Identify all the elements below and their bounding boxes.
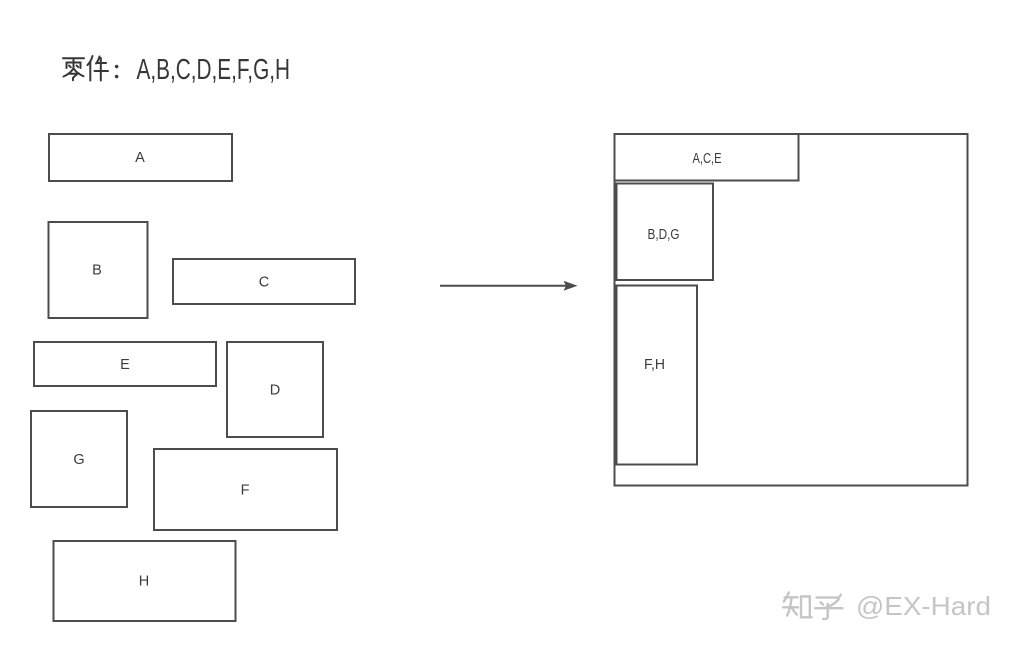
svg-text:A,C,E: A,C,E	[693, 151, 722, 167]
svg-text:F,H: F,H	[644, 357, 665, 373]
svg-text:H: H	[139, 574, 149, 590]
svg-text:B: B	[92, 263, 102, 279]
svg-text:D: D	[270, 383, 280, 399]
svg-text:@EX-Hard: @EX-Hard	[856, 591, 991, 621]
svg-text:E: E	[120, 357, 130, 373]
svg-text:F: F	[241, 483, 250, 499]
svg-text:G: G	[73, 452, 84, 468]
svg-text:C: C	[259, 275, 269, 291]
svg-text:A,B,C,D,E,F,G,H: A,B,C,D,E,F,G,H	[137, 54, 291, 86]
svg-text:B,D,G: B,D,G	[648, 227, 680, 243]
svg-text:A: A	[135, 150, 145, 166]
